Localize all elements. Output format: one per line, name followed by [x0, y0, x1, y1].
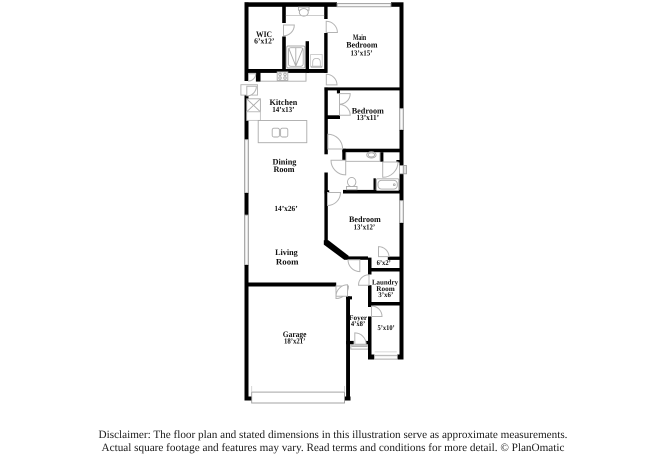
svg-text:Actual square footage and feat: Actual square footage and features may v…: [102, 442, 565, 454]
svg-text:6’x12’: 6’x12’: [254, 36, 275, 45]
svg-text:3’x6’: 3’x6’: [378, 291, 393, 299]
svg-text:Disclaimer: The floor plan and: Disclaimer: The floor plan and stated di…: [99, 429, 568, 441]
svg-text:Living: Living: [275, 248, 298, 257]
svg-text:18’x21’: 18’x21’: [284, 336, 306, 345]
svg-text:4’x8’: 4’x8’: [351, 320, 365, 328]
svg-text:14’x26’: 14’x26’: [274, 204, 298, 213]
svg-text:Room: Room: [273, 165, 294, 174]
svg-text:13’x15’: 13’x15’: [350, 48, 372, 57]
svg-text:5’x10’: 5’x10’: [378, 324, 395, 332]
svg-text:13’x11’: 13’x11’: [357, 113, 380, 122]
svg-text:6’x2’: 6’x2’: [377, 259, 391, 267]
svg-text:13’x12’: 13’x12’: [354, 223, 376, 232]
svg-text:14’x13’: 14’x13’: [272, 105, 295, 114]
svg-text:Room: Room: [276, 257, 299, 266]
